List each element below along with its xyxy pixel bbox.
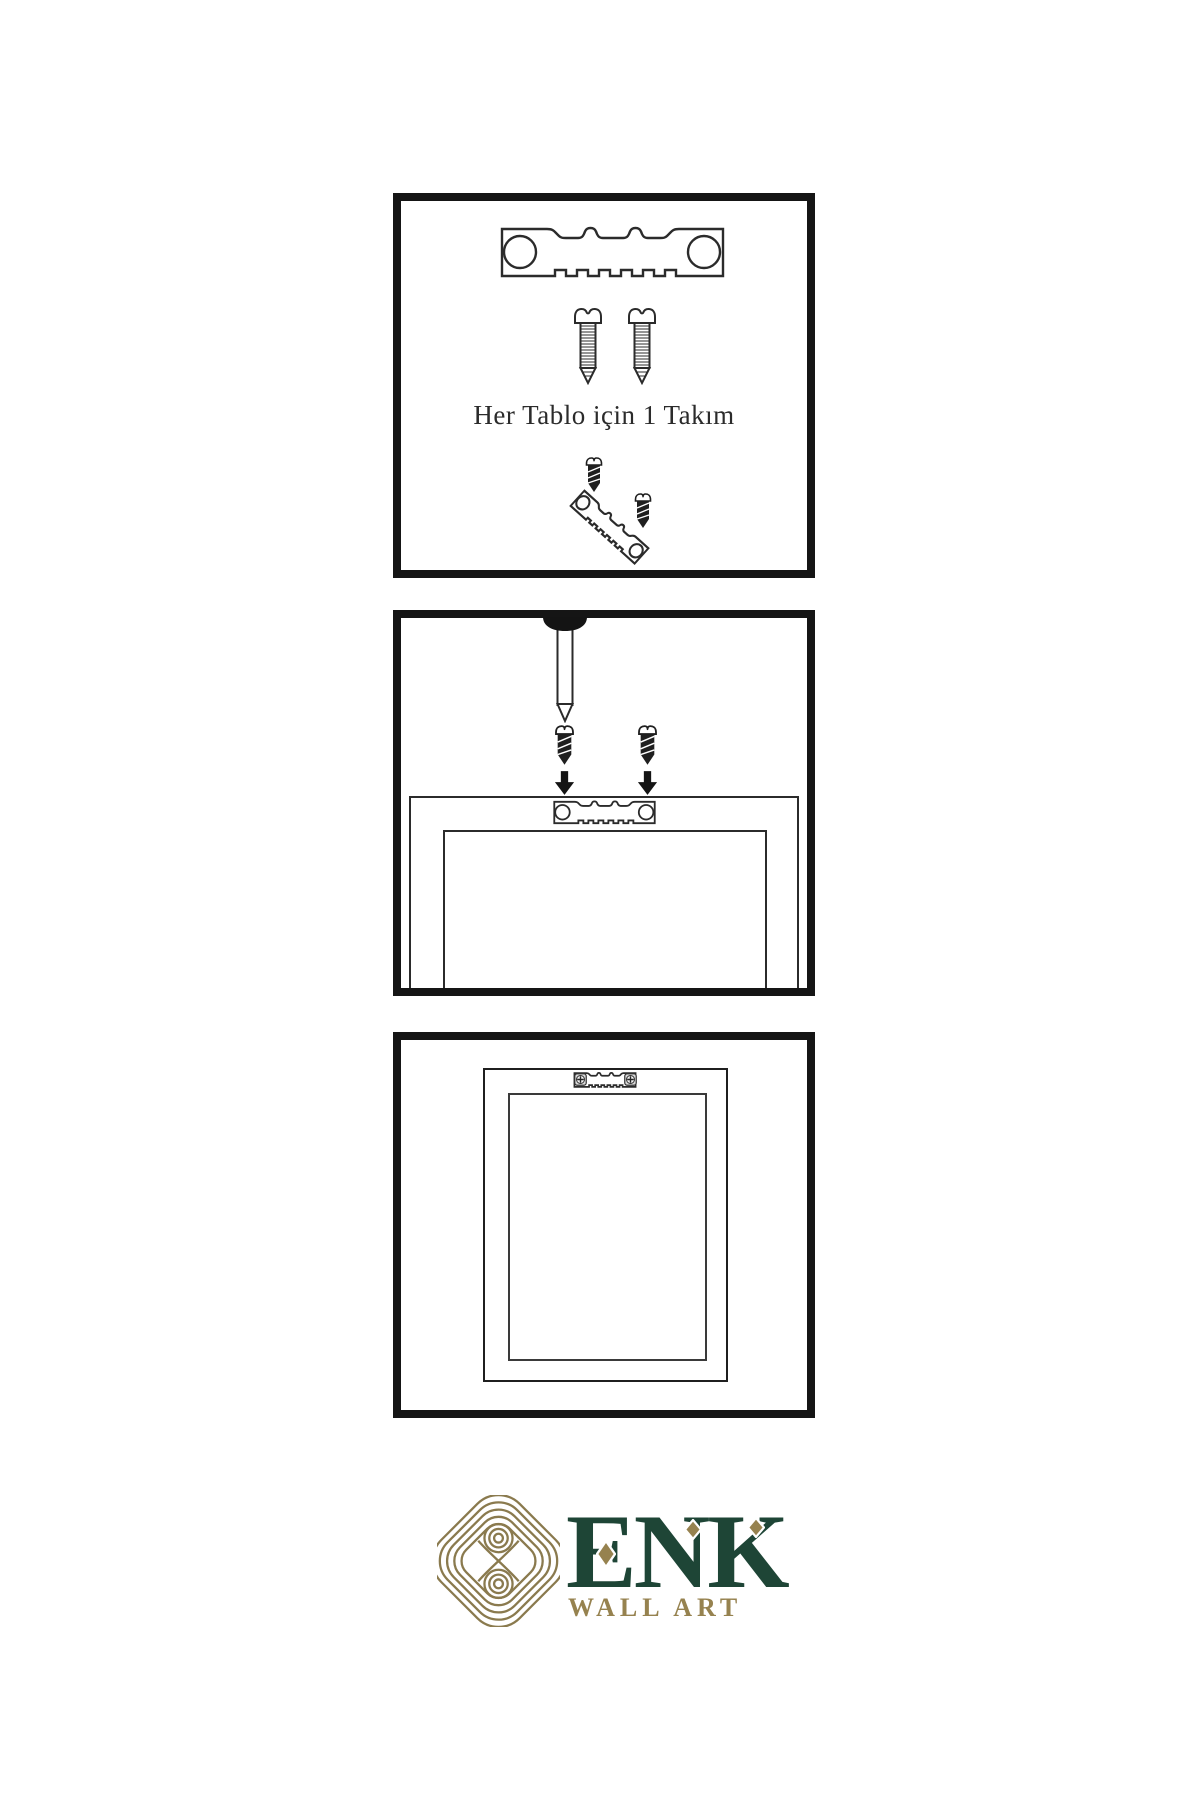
phillips-screw-icon bbox=[574, 1073, 587, 1086]
frame-back-outer-outline bbox=[483, 1068, 728, 1382]
diamond-accent-icon bbox=[596, 1540, 616, 1568]
frame-back-inner-outline bbox=[443, 830, 767, 988]
screw-dark-icon bbox=[632, 493, 654, 530]
arrow-down-icon bbox=[637, 771, 658, 796]
diamond-accent-icon bbox=[684, 1519, 702, 1540]
sawtooth-hanger-icon bbox=[497, 225, 728, 280]
screw-icon bbox=[627, 307, 657, 385]
instruction-sheet: Her Tablo için 1 Takım bbox=[0, 0, 1200, 1800]
brand-tagline: WALL ART bbox=[568, 1593, 742, 1623]
kit-caption: Her Tablo için 1 Takım bbox=[401, 400, 807, 431]
nail-icon bbox=[542, 617, 588, 723]
interlaced-knot-icon bbox=[437, 1495, 560, 1627]
arrow-down-icon bbox=[554, 771, 575, 796]
phillips-screw-icon bbox=[624, 1073, 637, 1086]
screw-icon bbox=[573, 307, 603, 385]
screw-dark-icon bbox=[635, 725, 660, 767]
screw-dark-icon bbox=[552, 725, 577, 767]
sawtooth-hanger-icon bbox=[552, 800, 657, 825]
frame-back-inner-outline bbox=[508, 1093, 707, 1361]
step-3-panel-hanger-mounted bbox=[393, 1032, 815, 1418]
step-2-panel-install-hanger bbox=[393, 610, 815, 996]
screw-dark-icon bbox=[583, 457, 605, 494]
diamond-accent-icon bbox=[747, 1517, 765, 1538]
step-1-panel-hardware-kit: Her Tablo için 1 Takım bbox=[393, 193, 815, 578]
